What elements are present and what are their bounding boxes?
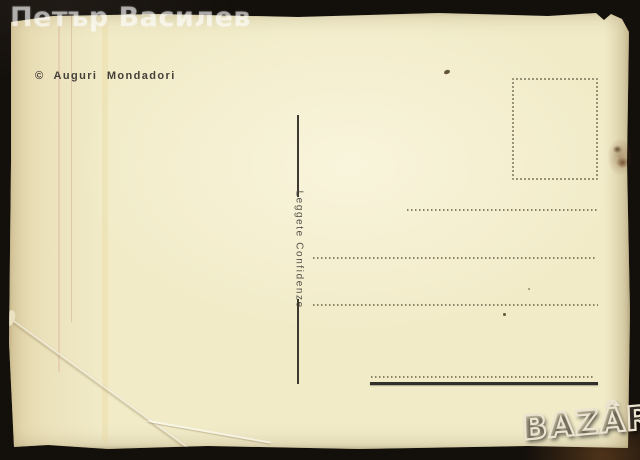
divider-line-bottom: [297, 299, 299, 384]
bottom-rule: [370, 382, 598, 385]
stain-speck: [503, 313, 506, 316]
address-line: [407, 209, 597, 211]
paper-streak: [71, 12, 72, 322]
edge-stain: [607, 138, 633, 176]
divider-label: Leggete Confidenze: [293, 191, 306, 307]
divider-line-top: [297, 115, 299, 197]
address-line: [371, 376, 595, 378]
stain-speck: [443, 69, 450, 75]
paper-streak: [58, 12, 60, 372]
address-line: [313, 257, 597, 259]
seller-watermark: Петър Василев: [10, 2, 251, 33]
postcard-back: © Auguri Mondadori Leggete Confidenze: [8, 12, 630, 449]
photo-backdrop: © Auguri Mondadori Leggete Confidenze Пе…: [0, 0, 640, 460]
stain-speck: [528, 288, 530, 290]
stamp-box: [512, 78, 598, 180]
address-line: [313, 304, 598, 306]
publisher-credit: © Auguri Mondadori: [35, 70, 176, 82]
crease-mark: [7, 316, 191, 450]
